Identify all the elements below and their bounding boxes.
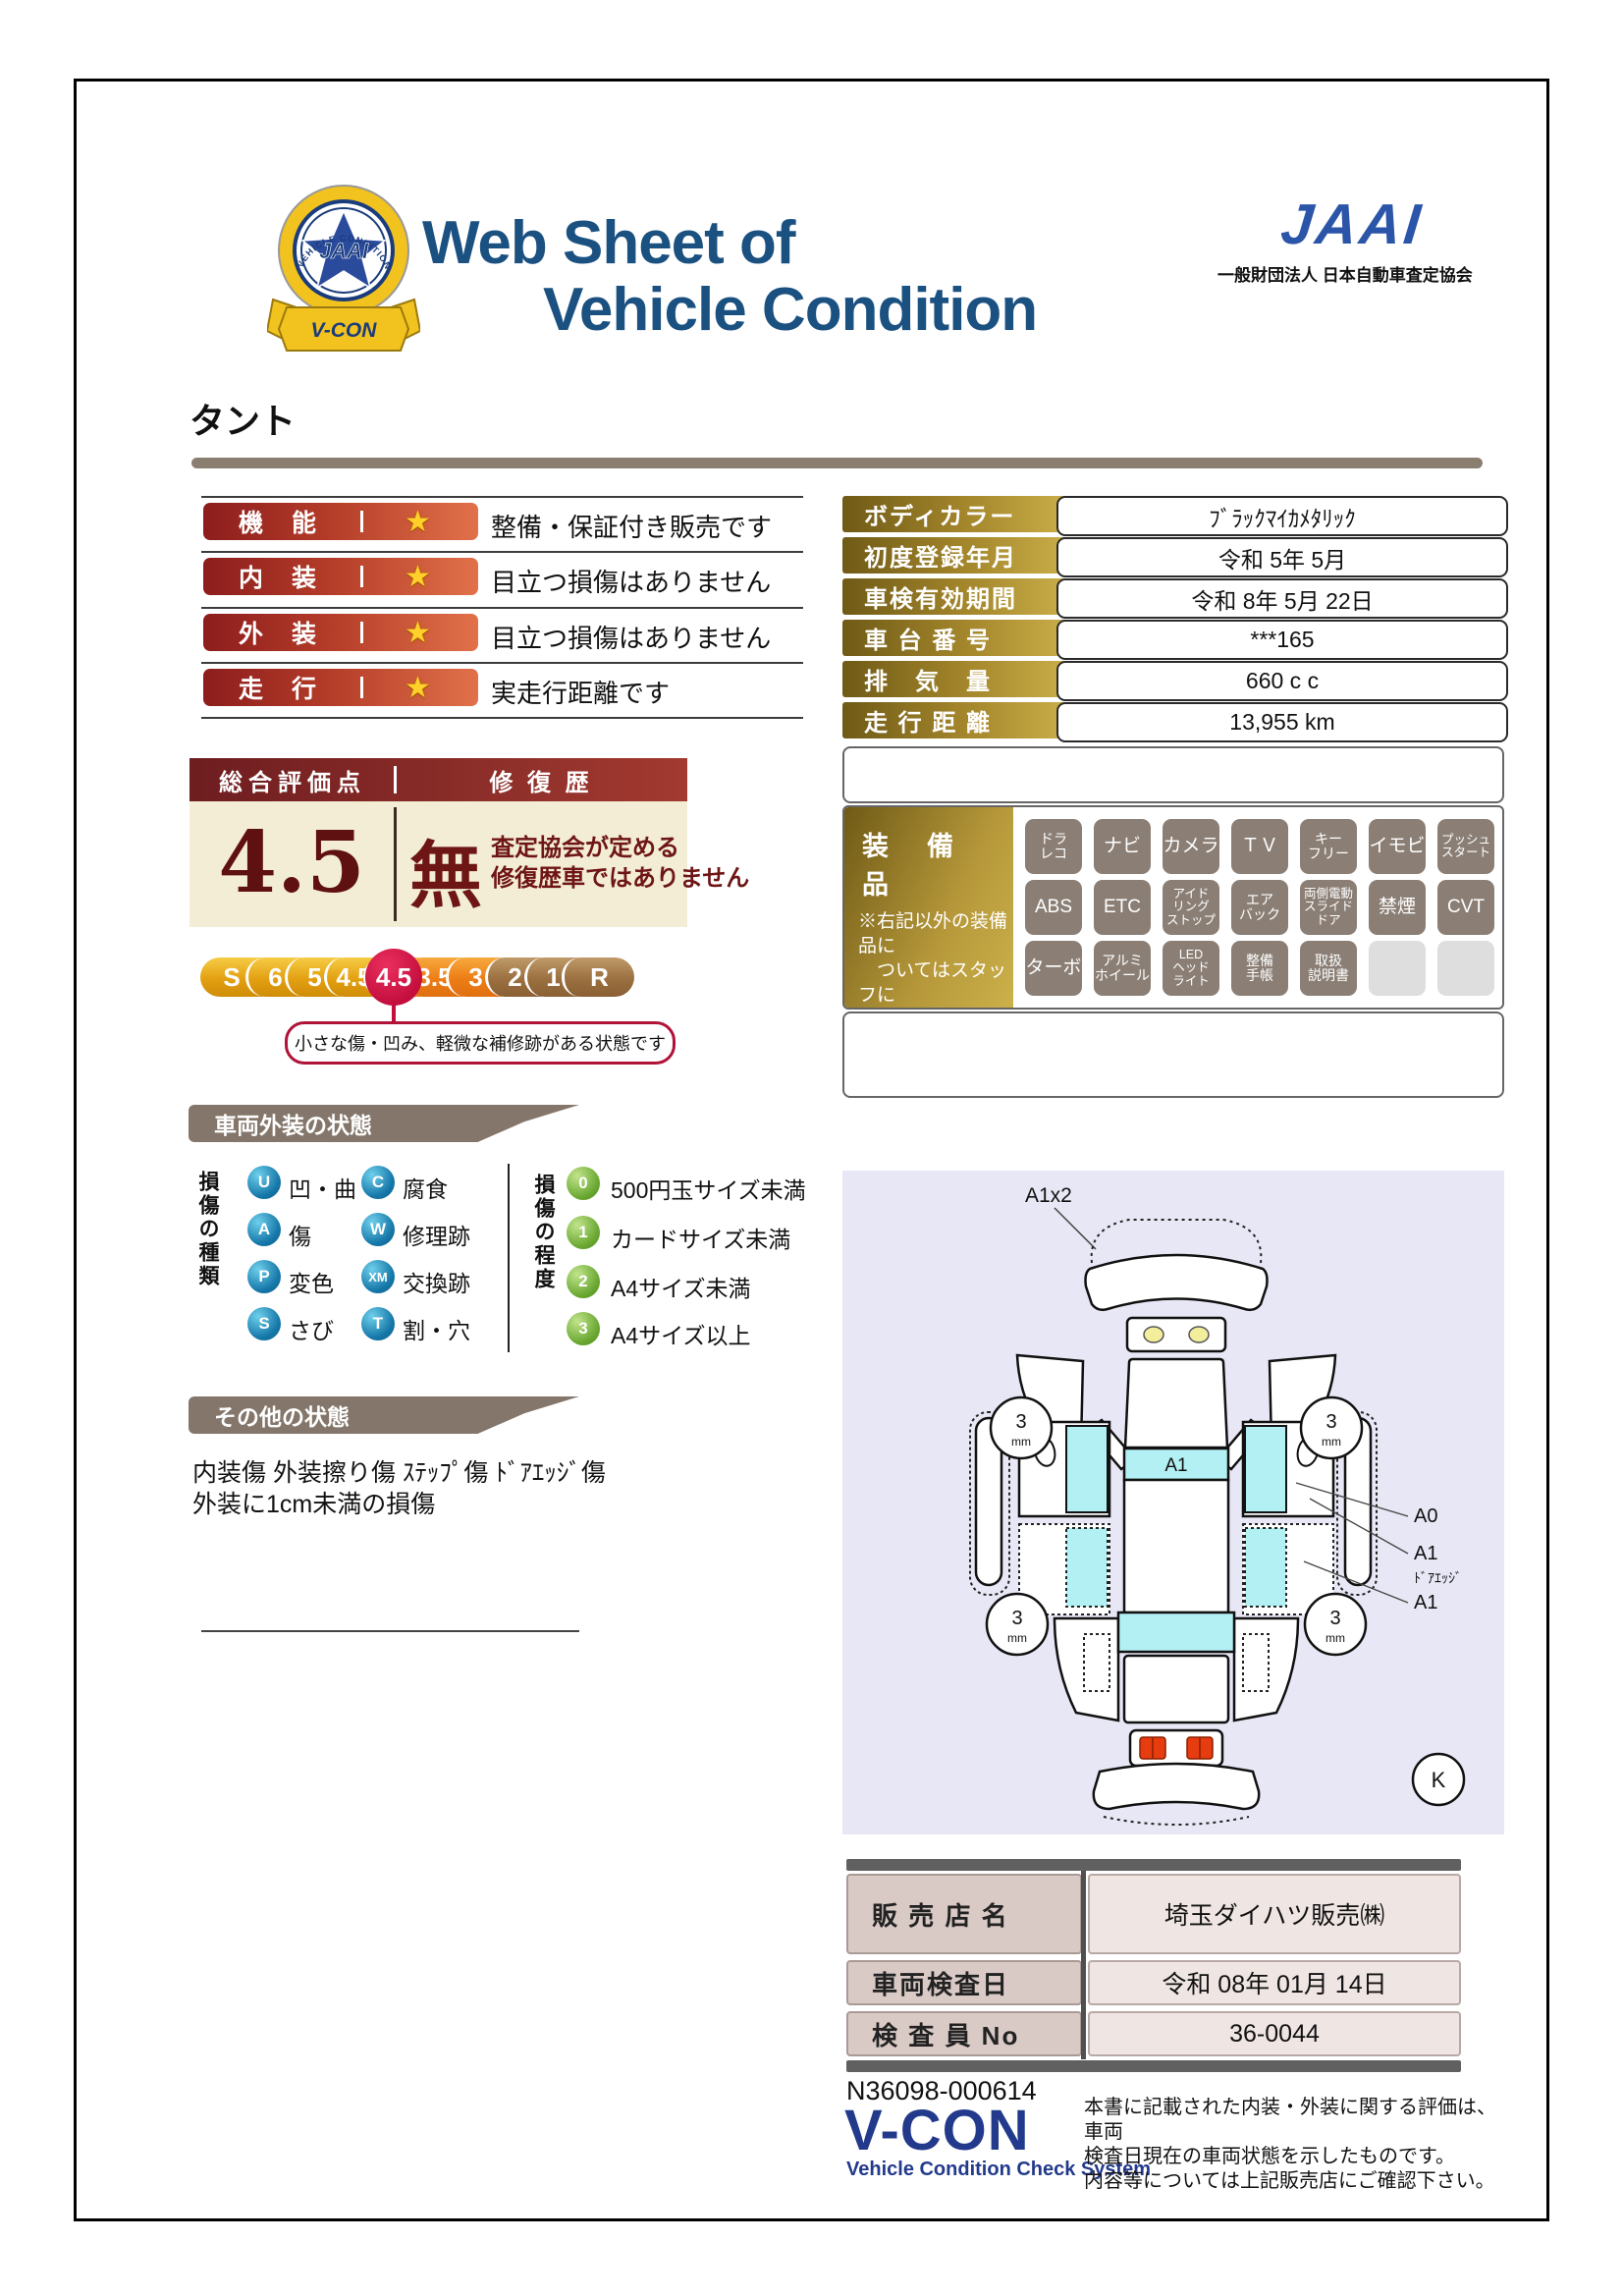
other-underline	[201, 1630, 579, 1632]
damage-text: 修理跡	[403, 1218, 470, 1251]
jaai-subtitle: 一般財団法人 日本自動車査定協会	[1217, 261, 1473, 286]
rear-door-right-window	[1245, 1528, 1286, 1607]
svg-text:mm: mm	[1007, 1631, 1027, 1645]
damage-label-a1-top: A1	[1414, 1543, 1437, 1564]
table-divider	[1081, 1871, 1086, 2059]
headlight-right-icon	[1189, 1327, 1209, 1342]
divider	[360, 566, 363, 587]
equipment-badge: ＴＶ	[1231, 819, 1288, 874]
equipment-note: ※右記以外の装備品に ついてはスタッフに お尋ねください。	[858, 909, 1013, 1010]
grade-r: R	[562, 957, 634, 997]
damage-degree-label: 損傷の程度	[528, 1174, 558, 1321]
body-divider	[394, 807, 397, 921]
separator-bar	[191, 458, 1483, 468]
divider-line	[201, 717, 803, 719]
equipment-gold-panel: 装 備 品 ※右記以外の装備品に ついてはスタッフに お尋ねください。	[844, 807, 1013, 1008]
svg-text:mm: mm	[1011, 1435, 1031, 1449]
divider-line	[201, 662, 803, 664]
rating-desc: 整備・保証付き販売です	[491, 508, 772, 544]
equipment-badge: カメラ	[1163, 819, 1219, 874]
empty-note-box-2	[842, 1011, 1504, 1098]
degree-text: 500円玉サイズ未満	[611, 1172, 806, 1205]
repair-history-header: 修 復 歴	[395, 758, 687, 801]
rating-label: 内 装	[203, 559, 356, 594]
degree-3: 3	[567, 1312, 600, 1345]
info-label: 排 気 量	[842, 661, 1072, 697]
table-bottom-bar	[846, 2060, 1461, 2072]
svg-text:V-CON: V-CON	[311, 319, 378, 342]
inspector-no-label: 検 査 員 No	[846, 2011, 1082, 2056]
degree-2: 2	[567, 1265, 600, 1298]
damage-code-w: W	[361, 1213, 395, 1246]
sheet-title-line1: Web Sheet of	[422, 208, 795, 278]
vcon-logo: V-CON	[844, 2098, 1030, 2163]
roof-damage-label: A1	[1164, 1455, 1187, 1476]
equipment-badge: ABS	[1025, 880, 1082, 935]
damage-code-a: A	[247, 1213, 281, 1246]
divider	[360, 511, 363, 532]
damage-label-a0: A0	[1414, 1505, 1437, 1527]
star-icon: ★	[405, 671, 431, 705]
damage-code-p: P	[247, 1260, 281, 1293]
star-icon: ★	[405, 560, 431, 594]
rating-desc: 実走行距離です	[491, 674, 670, 710]
svg-text:K: K	[1432, 1768, 1446, 1792]
repair-history-desc: 査定協会が定める 修復歴車ではありません	[491, 833, 749, 894]
info-label: ボディカラー	[842, 496, 1072, 532]
rating-label: 機 能	[203, 504, 356, 539]
equipment-badge: 両側電動 スライド ドア	[1300, 880, 1357, 935]
degree-text: A4サイズ未満	[611, 1270, 750, 1303]
damage-text: 交換跡	[403, 1265, 470, 1298]
equipment-badge: キー フリー	[1300, 819, 1357, 874]
equipment-badge: LED ヘッド ライト	[1163, 941, 1219, 996]
equipment-badge: 取扱 説明書	[1300, 941, 1357, 996]
equipment-badge: 禁煙	[1369, 880, 1426, 935]
grade-callout: 小さな傷・凹み、軽微な補修跡がある状態です	[285, 1021, 676, 1065]
roof-rear-strip	[1118, 1613, 1234, 1652]
info-value: ﾌﾞﾗｯｸﾏｲｶﾒﾀﾘｯｸ	[1056, 496, 1508, 536]
rating-row-function: 機 能 ★	[203, 503, 478, 540]
damage-text: さび	[289, 1312, 334, 1345]
svg-text:mm: mm	[1325, 1631, 1345, 1645]
empty-note-box	[842, 746, 1504, 803]
damage-text: 凹・曲	[289, 1171, 356, 1204]
headlight-panel	[1127, 1318, 1225, 1351]
rating-desc: 目立つ損傷はありません	[491, 563, 771, 599]
overall-score: 4.5	[189, 813, 394, 912]
inspection-date-label: 車両検査日	[846, 1960, 1082, 2005]
equipment-badge: イモビ	[1369, 819, 1426, 874]
equipment-badge: エア バック	[1231, 880, 1288, 935]
equipment-box: 装 備 品 ※右記以外の装備品に ついてはスタッフに お尋ねください。 ドラ レ…	[842, 805, 1504, 1010]
equipment-badge: アルミ ホイール	[1094, 941, 1151, 996]
info-label: 車 台 番 号	[842, 620, 1072, 656]
equipment-badge: プッシュ スタート	[1437, 819, 1494, 874]
info-value: 令和 5年 5月	[1056, 537, 1508, 577]
info-value: ***165	[1056, 620, 1508, 660]
divider-line	[201, 496, 803, 498]
equipment-badge: 整備 手帳	[1231, 941, 1288, 996]
svg-text:3: 3	[1325, 1411, 1336, 1433]
svg-text:mm: mm	[1322, 1435, 1341, 1449]
info-label: 初度登録年月	[842, 537, 1072, 574]
equipment-badge: CVT	[1437, 880, 1494, 935]
front-door-left-window	[1066, 1426, 1108, 1512]
legend-divider	[508, 1164, 510, 1352]
damage-kind-label: 損傷の種類	[192, 1171, 222, 1318]
disclaimer-text: 本書に記載された内装・外装に関する評価は、車両 検査日現在の車両状態を示したもの…	[1084, 2096, 1496, 2194]
damage-code-s: S	[247, 1307, 281, 1340]
damage-code-xm: XM	[361, 1260, 395, 1293]
hood-panel	[1125, 1359, 1227, 1448]
svg-text:3: 3	[1329, 1608, 1340, 1629]
star-icon: ★	[405, 505, 431, 539]
damage-text: 変色	[289, 1265, 334, 1298]
damage-code-t: T	[361, 1307, 395, 1340]
jaai-logo: JAAI	[1277, 191, 1426, 257]
damage-code-c: C	[361, 1166, 395, 1199]
inspection-date-value: 令和 08年 01月 14日	[1088, 1960, 1461, 2005]
equipment-badge: アイド リング ストップ	[1163, 880, 1219, 935]
rating-desc: 目立つ損傷はありません	[491, 619, 771, 655]
rear-bumper	[1094, 1764, 1259, 1809]
rating-label: 走 行	[203, 670, 356, 705]
tread-depth-front-right: 3 mm	[1301, 1397, 1362, 1458]
corner-mark: K	[1413, 1754, 1464, 1805]
damage-text: 傷	[289, 1218, 311, 1251]
equipment-badge: ナビ	[1094, 819, 1151, 874]
dealer-label: 販 売 店 名	[846, 1874, 1082, 1954]
damage-code-u: U	[247, 1166, 281, 1199]
inspector-no-value: 36-0044	[1088, 2011, 1461, 2056]
svg-text:3: 3	[1015, 1411, 1026, 1433]
vehicle-condition-sheet: VEHICLE CONDITION CHECK SYSTEM JAAI V-CO…	[0, 0, 1623, 2296]
degree-1: 1	[567, 1216, 600, 1249]
info-value: 13,955 km	[1056, 702, 1508, 742]
headlight-left-icon	[1144, 1327, 1163, 1342]
damage-text: 割・穴	[403, 1312, 470, 1345]
tread-depth-rear-left: 3 mm	[987, 1594, 1048, 1655]
sheet-title-line2: Vehicle Condition	[543, 275, 1037, 345]
divider	[360, 677, 363, 698]
rating-label: 外 装	[203, 615, 356, 650]
rating-row-exterior: 外 装 ★	[203, 614, 478, 651]
divider-line	[201, 607, 803, 609]
table-top-bar	[846, 1859, 1461, 1871]
equipment-badge-empty	[1437, 941, 1494, 996]
damage-text: 腐食	[403, 1171, 448, 1204]
vehicle-name: タント	[189, 393, 296, 444]
selected-grade-marker: 4.5	[365, 949, 422, 1006]
vcon-badge-icon: VEHICLE CONDITION CHECK SYSTEM JAAI V-CO…	[267, 180, 420, 362]
repair-history-mark: 無	[409, 817, 482, 922]
equipment-title: 装 備 品	[862, 825, 1013, 902]
other-condition-text: 内装傷 外装擦り傷 ｽﾃｯﾌﾟ傷 ﾄﾞｱｴｯｼﾞ傷 外装に1cm未満の損傷	[192, 1457, 801, 1520]
info-value: 660 c c	[1056, 661, 1508, 701]
rating-row-interior: 内 装 ★	[203, 558, 478, 595]
tailgate-panel	[1124, 1656, 1228, 1722]
degree-0: 0	[567, 1167, 600, 1200]
equipment-badge-empty	[1369, 941, 1426, 996]
damage-label-dooredge: ﾄﾞｱｴｯｼﾞ	[1414, 1570, 1462, 1586]
star-icon: ★	[405, 616, 431, 650]
equipment-badge: ETC	[1094, 880, 1151, 935]
tread-depth-front-left: 3 mm	[991, 1397, 1052, 1458]
equipment-badge: ターボ	[1025, 941, 1082, 996]
rear-door-left-window	[1066, 1528, 1108, 1607]
tread-depth-rear-right: 3 mm	[1305, 1594, 1366, 1655]
divider	[360, 622, 363, 643]
dealer-value: 埼玉ダイハツ販売㈱	[1088, 1874, 1461, 1954]
info-value: 令和 8年 5月 22日	[1056, 578, 1508, 619]
roof-panel	[1124, 1480, 1228, 1613]
rating-row-mileage: 走 行 ★	[203, 669, 478, 706]
svg-text:3: 3	[1011, 1608, 1022, 1629]
front-damage-label: A1x2	[1025, 1184, 1072, 1207]
svg-text:JAAI: JAAI	[319, 239, 369, 263]
info-label: 車検有効期間	[842, 578, 1072, 615]
overall-header-left: 総合評価点	[189, 763, 366, 797]
divider-line	[201, 551, 803, 553]
equipment-badge: ドラ レコ	[1025, 819, 1082, 874]
front-door-right-window	[1245, 1426, 1286, 1512]
damage-label-a1-bottom: A1	[1414, 1592, 1437, 1613]
info-label: 走 行 距 離	[842, 702, 1072, 738]
degree-text: カードサイズ未満	[611, 1221, 790, 1254]
car-diagram: A1x2 A1	[842, 1171, 1504, 1834]
degree-text: A4サイズ以上	[611, 1317, 750, 1350]
